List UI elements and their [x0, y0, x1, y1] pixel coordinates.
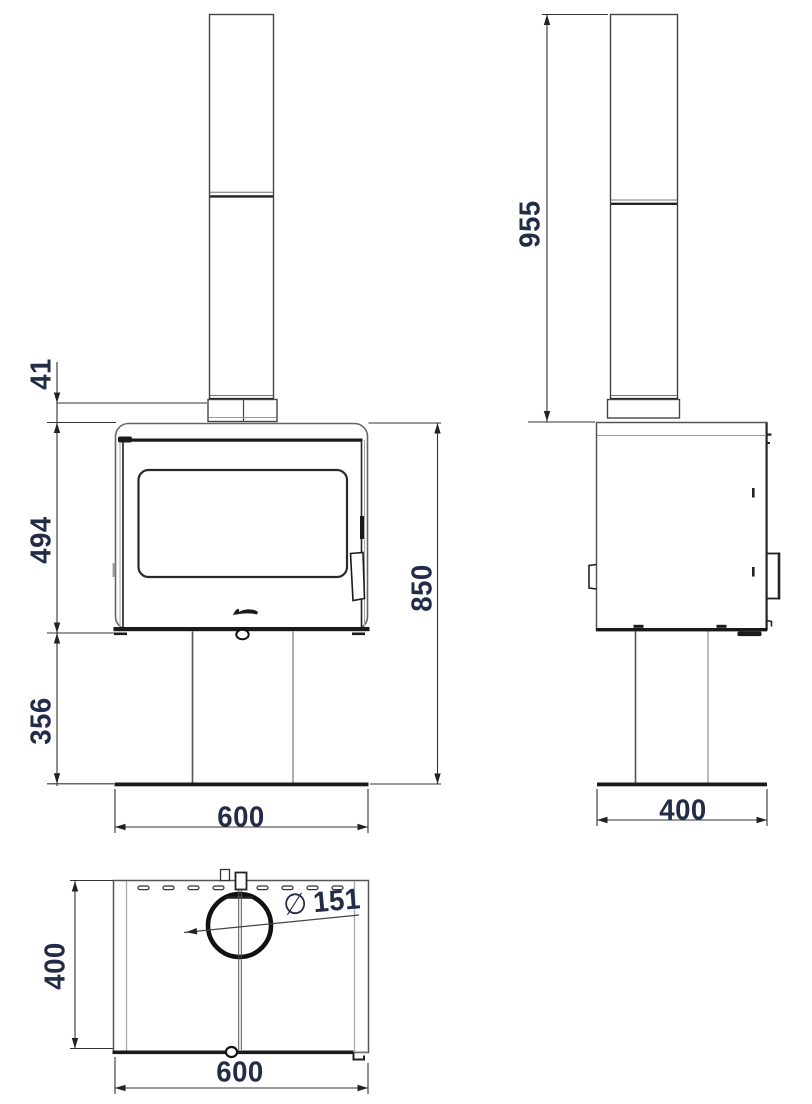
dim-flue-height: 955 — [517, 200, 546, 247]
side-pedestal — [597, 632, 767, 787]
top-knob — [226, 1047, 237, 1057]
dim-side-depth: 400 — [659, 797, 706, 826]
side-latch-tab — [589, 565, 597, 590]
dim-flue-top-offset: 41 — [28, 358, 57, 390]
dim-pedestal-height: 356 — [28, 697, 57, 744]
side-view — [589, 15, 779, 787]
drawing-linework — [0, 0, 812, 1104]
door-window — [139, 470, 348, 577]
front-pedestal — [115, 632, 369, 787]
dim-top-width: 600 — [216, 1059, 263, 1088]
dim-front-width: 600 — [217, 804, 264, 833]
front-base-plate — [115, 783, 369, 787]
flue-outlet-circle — [208, 894, 271, 957]
front-flue-pipe — [209, 15, 274, 400]
diameter-value: 151 — [312, 883, 362, 919]
dim-overall-height: 850 — [409, 564, 438, 611]
dim-firebox-height: 494 — [28, 516, 57, 563]
door-latch — [360, 516, 364, 539]
side-flue-pipe — [608, 15, 680, 419]
side-base-plate — [597, 783, 767, 787]
door-handle — [351, 553, 365, 601]
front-view — [113, 15, 370, 787]
diameter-symbol: ∅ — [282, 887, 315, 922]
side-stove-body — [589, 423, 779, 637]
dim-flue-diameter: ∅151 — [282, 885, 362, 921]
front-stove-body — [113, 424, 370, 640]
side-door-handle — [767, 553, 779, 600]
dim-top-depth: 400 — [42, 942, 71, 989]
air-control-knob — [236, 630, 248, 640]
stove-dimension-drawing: 41 494 356 850 600 955 400 400 600 ∅151 — [0, 0, 812, 1104]
